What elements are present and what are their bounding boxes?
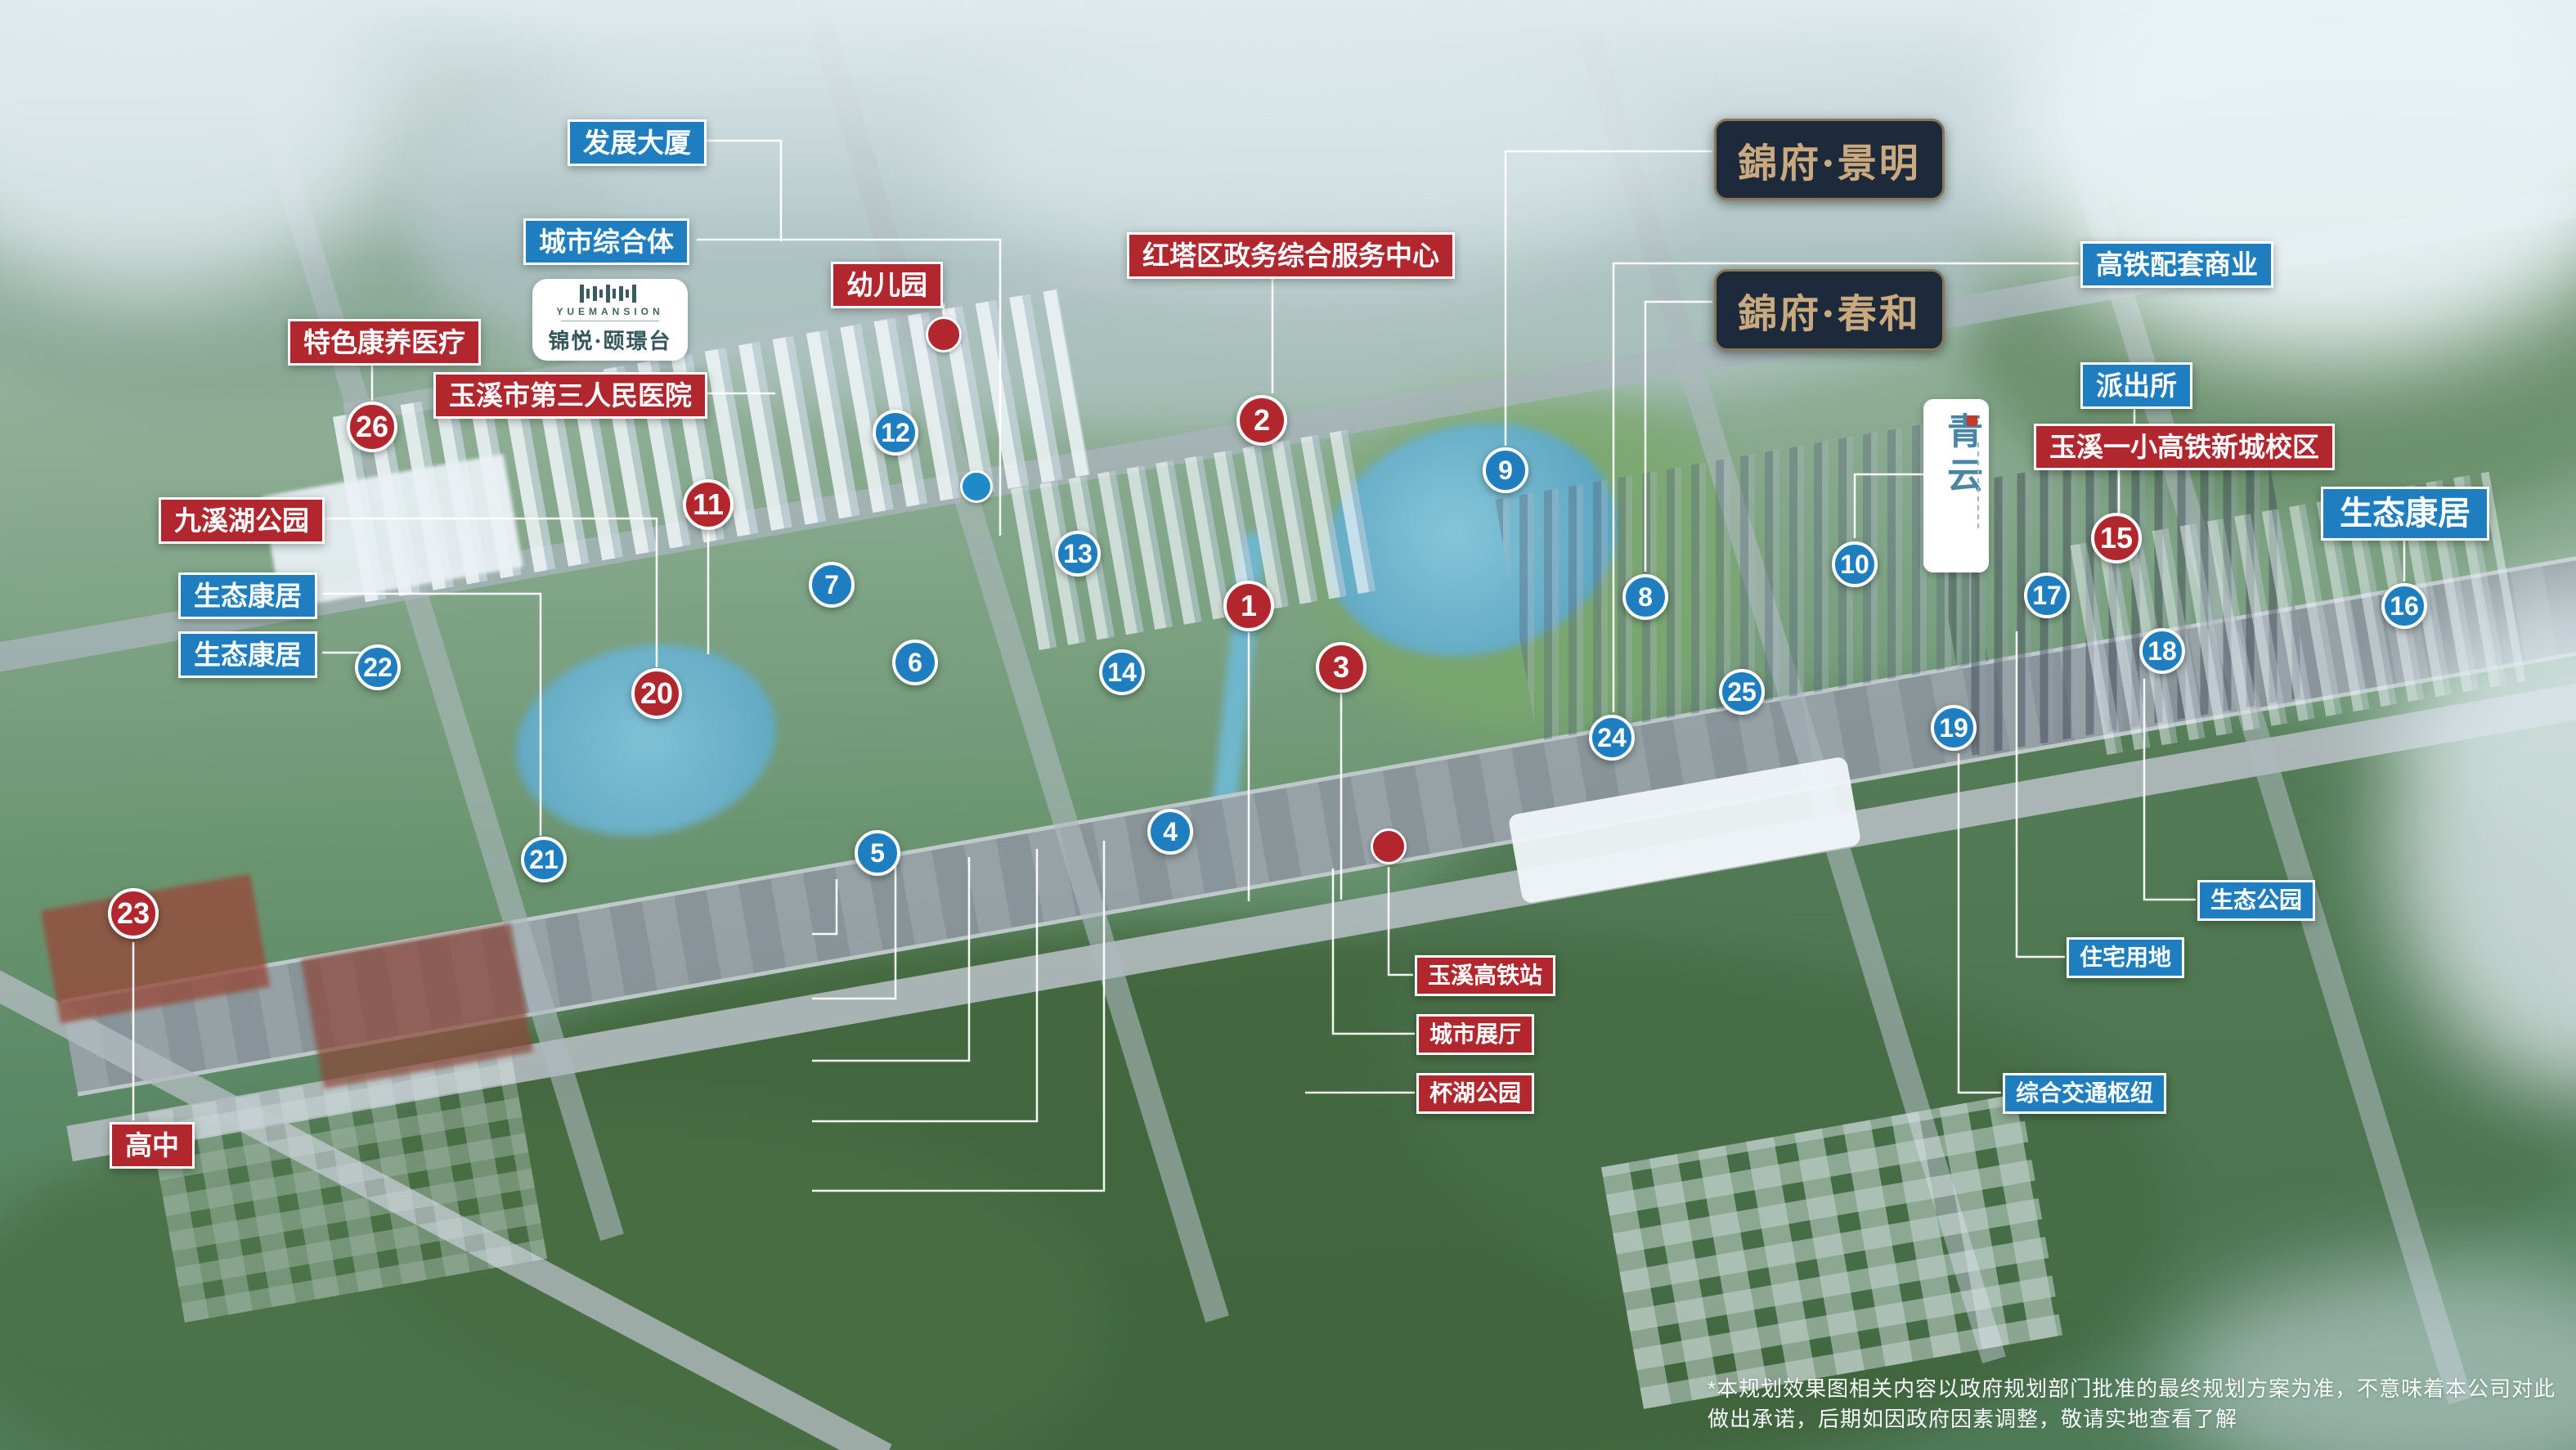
leader-line-24	[1389, 867, 1413, 975]
marker-7: 7	[809, 562, 855, 608]
marker-24: 24	[1589, 715, 1635, 761]
marker-20: 20	[631, 668, 682, 719]
marker-1: 1	[1223, 581, 1274, 631]
label-shengtai-kangju-right: 生态康居	[2321, 487, 2489, 541]
marker-25: 25	[1719, 669, 1765, 715]
label-zonghe-jiaotong-shuniu: 综合交通枢纽	[2003, 1073, 2166, 1114]
marker-21: 21	[521, 837, 567, 882]
marker-19: 19	[1931, 705, 1977, 751]
label-fazhan-dasha: 发展大厦	[568, 119, 707, 166]
yuemansion-logo: YUEMANSION 锦悦·颐璟台	[532, 279, 688, 361]
marker-14: 14	[1099, 649, 1145, 695]
label-gaozhong: 高中	[110, 1122, 195, 1169]
leader-line-28	[2017, 631, 2065, 957]
marker-26: 26	[347, 402, 397, 452]
label-youeryuan: 幼儿园	[831, 262, 943, 308]
label-tese-kangyang-yiliao: 特色康养医疗	[288, 319, 481, 366]
label-chengshi-zhanting: 城市展厅	[1416, 1014, 1534, 1055]
label-zhuzhai-yongdi: 住宅用地	[2067, 937, 2184, 978]
label-yuxi-yixiao-gaotie-xincheng-xiaoqu: 玉溪一小高铁新城校区	[2034, 424, 2335, 470]
marker-16: 16	[2381, 583, 2427, 629]
leader-line-23	[812, 841, 1104, 1191]
qingyun-logo-cn: 青云	[1935, 412, 1987, 501]
leader-line-13	[322, 594, 541, 836]
leader-line-6	[1506, 151, 1712, 446]
marker-6: 6	[892, 640, 938, 685]
leader-line-0	[698, 141, 781, 241]
label-chengshi-zongheti: 城市综合体	[523, 218, 689, 265]
marker-15: 15	[2091, 513, 2142, 563]
label-shengtai-kangju-left-2: 生态康居	[178, 631, 317, 678]
disclaimer-text: *本规划效果图相关内容以政府规划部门批准的最终规划方案为准，不意味着本公司对此做…	[1708, 1372, 2576, 1433]
marker-11: 11	[683, 479, 734, 530]
label-jinfu-jingming: 錦府·景明	[1714, 119, 1945, 200]
label-yuxi-gaotiezhan: 玉溪高铁站	[1415, 955, 1555, 996]
label-jinfu-chunhe: 錦府·春和	[1714, 269, 1945, 351]
yuemansion-logo-divider	[561, 321, 659, 321]
marker-8: 8	[1622, 574, 1668, 620]
marker-10: 10	[1832, 541, 1878, 587]
label-yuxi-di-san-renmin-yiyuan: 玉溪市第三人民医院	[433, 372, 707, 419]
qingyun-seal-icon	[1967, 415, 1977, 426]
marker-22: 22	[355, 644, 401, 690]
marker-3: 3	[1316, 642, 1367, 693]
marker-23: 23	[108, 888, 159, 939]
label-beihu-gongyuan: 杯湖公园	[1416, 1073, 1534, 1114]
marker-2: 2	[1236, 395, 1287, 446]
youeryuan-dot	[926, 316, 962, 352]
marker-17: 17	[2024, 572, 2070, 618]
label-shengtai-gongyuan: 生态公园	[2197, 880, 2315, 921]
leader-line-20	[812, 865, 895, 999]
yuemansion-bars-icon	[578, 285, 642, 303]
leader-line-27	[2144, 679, 2196, 900]
yuemansion-logo-cn: 锦悦·颐璟台	[548, 325, 671, 355]
qingyun-side-script	[1977, 438, 1979, 528]
leader-line-25	[1333, 869, 1415, 1034]
leader-line-30	[1855, 474, 1923, 538]
leader-line-22	[812, 849, 1037, 1121]
label-hongtaqu-zhengwu-fuwu-zhongxin: 红塔区政务综合服务中心	[1127, 232, 1455, 279]
leader-line-7	[1645, 302, 1712, 572]
residential-dot	[960, 470, 993, 503]
label-shengtai-kangju-left-1: 生态康居	[178, 572, 317, 619]
marker-4: 4	[1147, 809, 1193, 855]
label-jiuxihu-gongyuan: 九溪湖公园	[159, 497, 325, 544]
marker-5: 5	[855, 830, 900, 876]
marker-9: 9	[1483, 447, 1528, 493]
marker-12: 12	[873, 410, 918, 456]
yuemansion-logo-en: YUEMANSION	[556, 306, 663, 317]
marker-18: 18	[2139, 628, 2185, 674]
qingyun-logo: 青云	[1923, 399, 1989, 572]
leader-line-29	[1959, 753, 2001, 1093]
leader-line-19	[812, 879, 837, 934]
label-gaotie-peitao-shangye-top: 高铁配套商业	[2080, 241, 2273, 288]
gaotiezhan-dot	[1371, 828, 1407, 864]
marker-13: 13	[1055, 531, 1101, 577]
masterplan-map: 发展大厦城市综合体特色康养医疗玉溪市第三人民医院幼儿园红塔区政务综合服务中心高铁…	[0, 0, 2576, 1450]
leader-lines	[0, 0, 2576, 1450]
label-paichusuo: 派出所	[2080, 362, 2192, 409]
